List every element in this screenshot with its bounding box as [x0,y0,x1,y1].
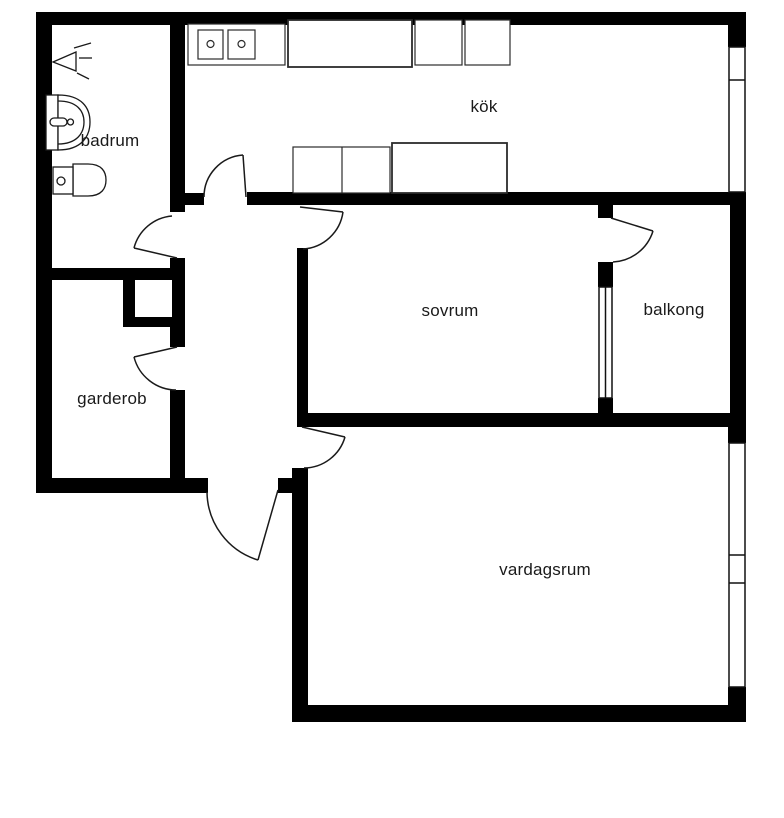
wall-top-right-corner [728,12,746,47]
walls [36,12,746,722]
counter-appliance-2 [465,20,510,65]
wall-bottom [292,705,746,722]
wall-right-block-upper [728,427,746,443]
toilet-icon [53,164,106,196]
floor-plan-drawing [0,0,784,818]
garderob-door [134,347,177,390]
wall-hall-left-lower [170,390,185,493]
badrum-door [134,216,177,258]
room-label-vardagsrum: vardagsrum [499,560,591,580]
counter-lower-right [392,143,507,193]
shower-icon [53,43,92,79]
wall-right-block-lower [728,687,746,722]
closet-interior [135,280,172,317]
balcony-door [611,218,653,262]
wall-sovrum-left [297,248,308,413]
wall-badrum-right [170,25,185,212]
vardagsrum-door [302,427,345,468]
room-label-garderob: garderob [77,389,147,409]
room-label-kok: kök [470,97,497,117]
wall-vardagsrum-left [292,468,308,722]
sink-drain-left [207,41,214,48]
entry-door [207,490,278,560]
floor-plan: badrum kök sovrum balkong garderob varda… [0,0,784,818]
wall-kitchen-stub [185,193,204,205]
bathroom-fixtures [46,43,106,196]
wall-sovrum-bottom [297,413,746,427]
wall-balcony-junction [598,205,613,218]
sink-drain-right [238,41,245,48]
counter-top-long [288,20,412,67]
room-label-sovrum: sovrum [422,301,479,321]
kitchen-counters [188,20,510,193]
wall-kitchen-bottom [247,192,746,205]
doors [134,155,653,560]
counter-appliance-1 [415,20,462,65]
wall-balcony-right [730,192,746,427]
kitchen-window [729,47,745,192]
wall-balcony-left-mid [598,262,613,287]
wall-balcony-left-low [598,398,613,427]
windows [599,47,745,687]
sovrum-door [300,207,343,249]
room-label-balkong: balkong [644,300,705,320]
wall-left [36,12,52,493]
kitchen-door [204,155,246,197]
vardagsrum-window [729,443,745,687]
room-label-badrum: badrum [81,131,140,151]
